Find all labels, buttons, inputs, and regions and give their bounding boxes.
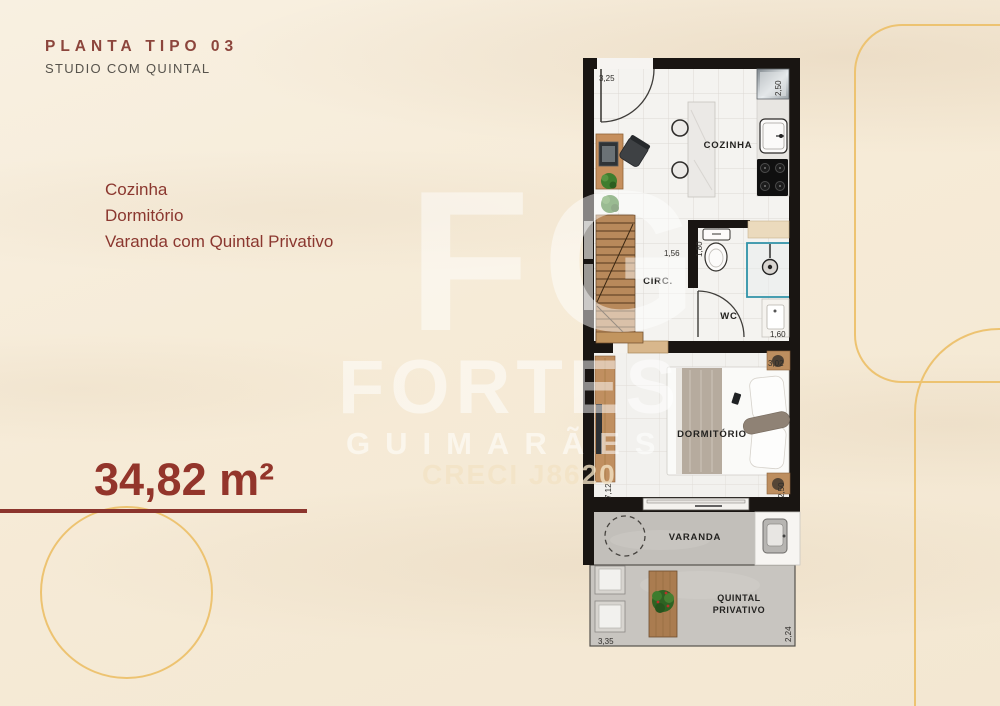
room-label-varanda: VARANDA bbox=[669, 532, 721, 543]
floorplan: COZINHA CIRC. WC DORMITÓRIO VARANDA QUIN… bbox=[0, 0, 1000, 706]
flyer-page: PLANTA TIPO 03 STUDIO COM QUINTAL Cozinh… bbox=[0, 0, 1000, 706]
dim-unit-depth: 7,12 bbox=[604, 483, 613, 499]
room-label-wc: WC bbox=[720, 311, 737, 322]
wall-recess bbox=[584, 221, 593, 259]
cooktop bbox=[757, 159, 788, 196]
kitchen-sink bbox=[760, 119, 787, 153]
wardrobe-tv-panel bbox=[595, 356, 615, 482]
room-label-dormitorio: DORMITÓRIO bbox=[677, 428, 747, 440]
laundry-tank bbox=[755, 512, 800, 565]
wc-counter bbox=[748, 221, 789, 238]
dim-quintal-depth: 2,24 bbox=[784, 626, 793, 642]
armchair bbox=[595, 601, 625, 632]
fridge bbox=[757, 69, 789, 99]
sliding-door bbox=[643, 498, 749, 510]
room-label-cozinha: COZINHA bbox=[704, 140, 753, 151]
room-label-quintal-2: PRIVATIVO bbox=[713, 605, 766, 615]
wall-recess bbox=[584, 264, 593, 310]
dim-dorm-depth: 2,50 bbox=[777, 482, 786, 498]
room-label-circ: CIRC. bbox=[643, 276, 673, 287]
plant bbox=[601, 195, 619, 213]
dim-entry-width: 3,25 bbox=[599, 74, 615, 83]
plant bbox=[601, 173, 617, 189]
bed bbox=[667, 367, 791, 475]
dim-wc-width: 1,60 bbox=[770, 330, 786, 339]
stool bbox=[672, 120, 688, 136]
shower bbox=[747, 243, 789, 297]
dim-circ-width: 1,56 bbox=[664, 249, 680, 258]
stool bbox=[672, 162, 688, 178]
dim-wc-depth: 1,80 bbox=[695, 241, 704, 257]
dim-dorm-width: 3,02 bbox=[768, 359, 784, 368]
wood-table bbox=[649, 571, 677, 637]
dim-kitchen-depth: 2,50 bbox=[774, 80, 783, 96]
room-label-quintal-1: QUINTAL bbox=[717, 593, 761, 603]
dim-quintal-width: 3,35 bbox=[598, 637, 614, 646]
armchair bbox=[595, 566, 625, 594]
